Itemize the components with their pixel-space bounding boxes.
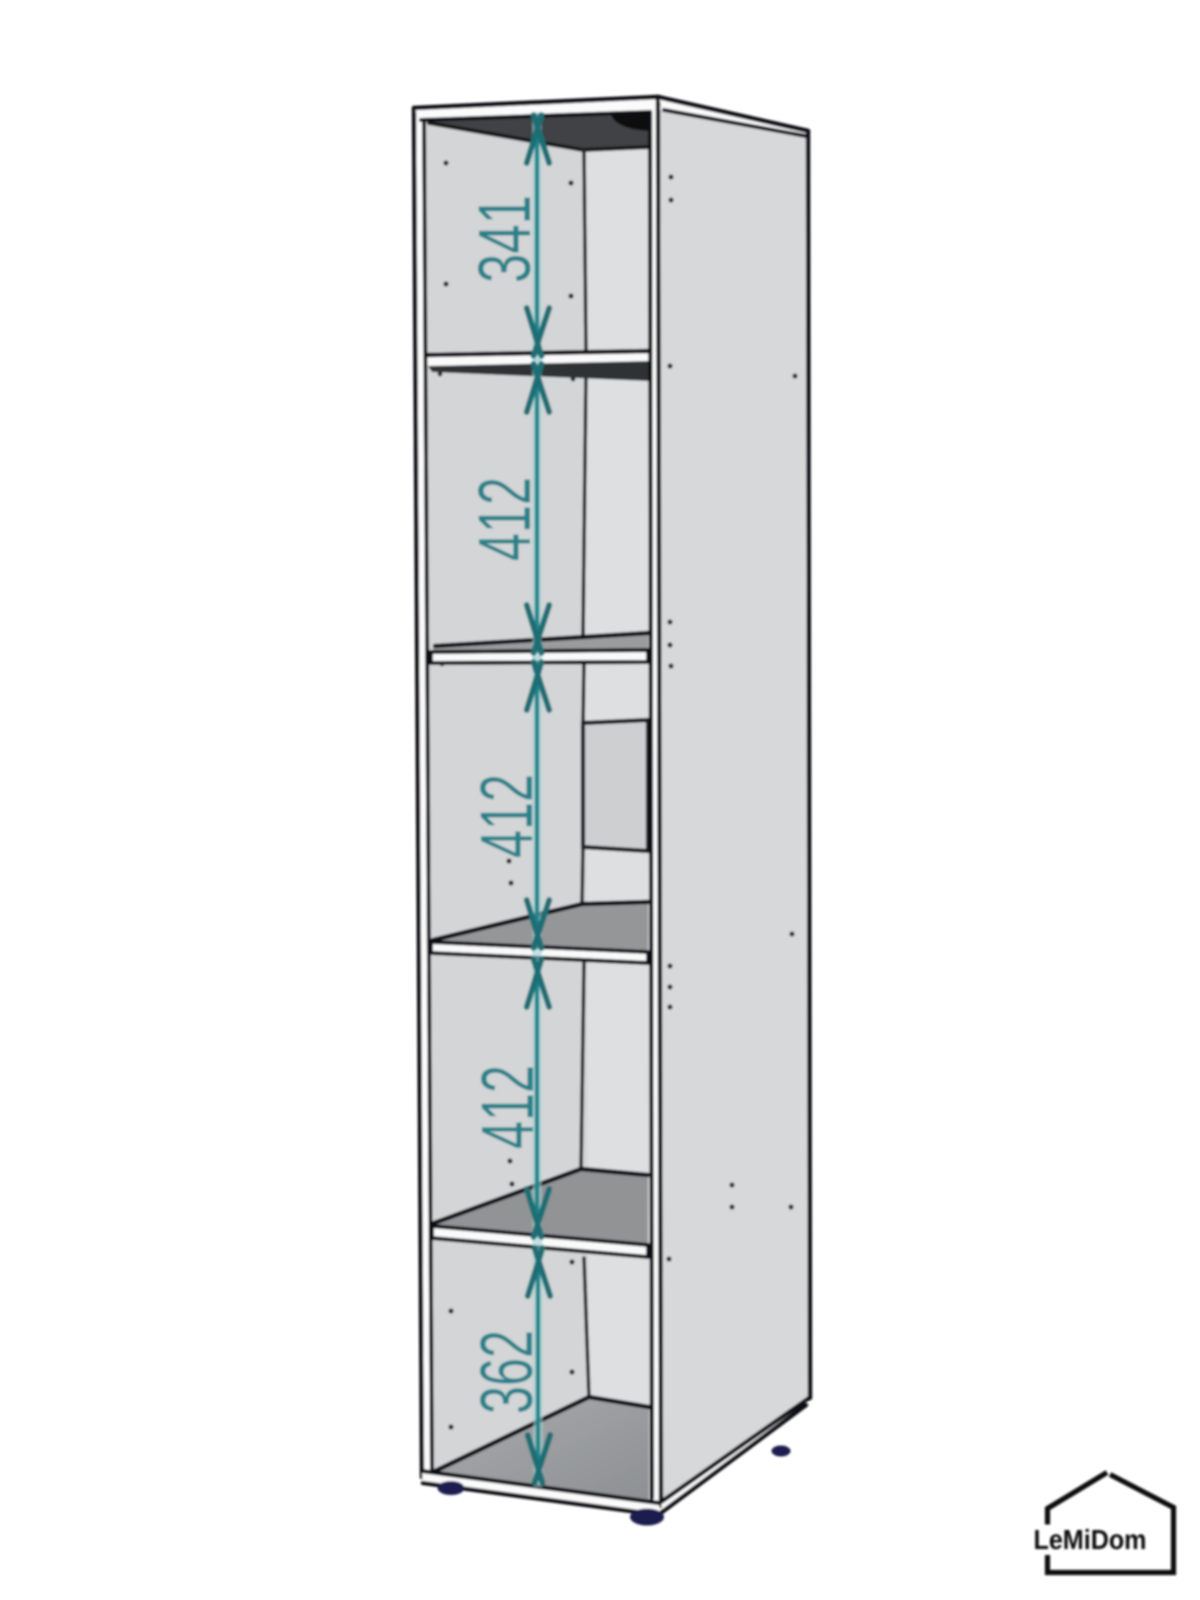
svg-text:362: 362 — [465, 1330, 548, 1414]
svg-text:341: 341 — [463, 195, 546, 283]
svg-text:412: 412 — [465, 774, 548, 858]
svg-text:412: 412 — [466, 1065, 549, 1149]
svg-text:412: 412 — [463, 477, 546, 561]
svg-text:LeMiDom: LeMiDom — [1034, 1524, 1147, 1555]
